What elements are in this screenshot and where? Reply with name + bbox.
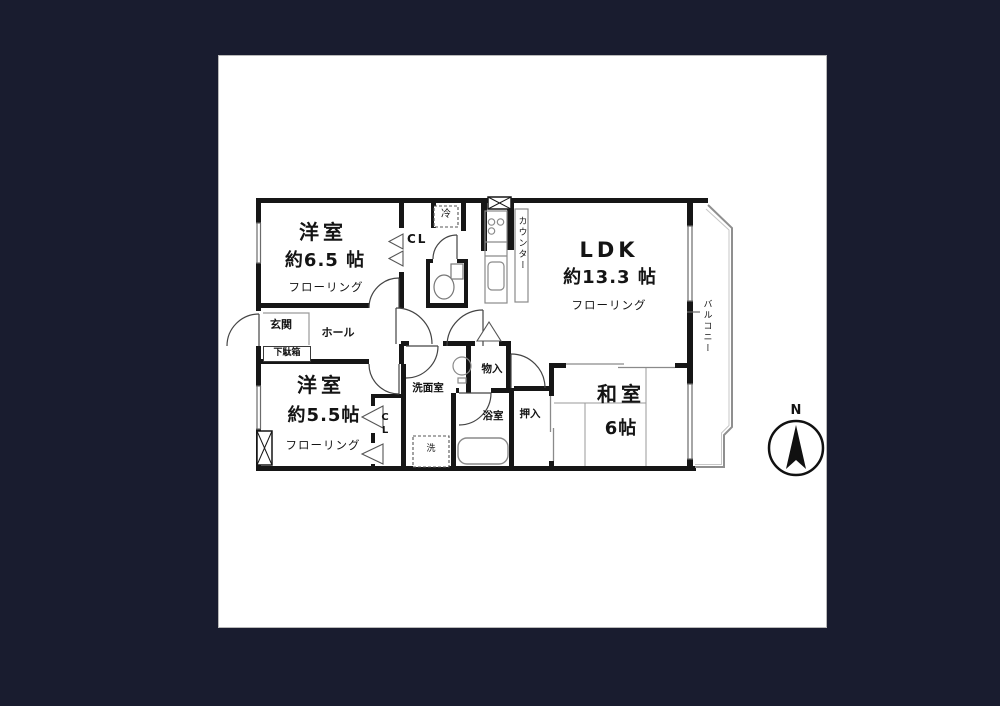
washroom-label: 洗面室 [403,383,453,394]
closet-bottom-label: CL [379,412,390,438]
toilet-fixture [434,264,463,299]
washer-label: 洗 [413,445,449,454]
counter-label: カウンター [516,216,525,271]
balcony-label: バルコニー [701,299,710,354]
storage-label: 物入 [472,364,512,375]
bedroom1-size: 約6.5 帖 [265,252,385,271]
bedroom2-name: 洋室 [281,375,361,396]
canvas-background: 洋室 約6.5 帖 フローリング CL 冷 カウンター LDK 約13.3 帖 … [0,0,1000,706]
bedroom1-floor: フローリング [276,281,376,293]
shoe-box-label: 下駄箱 [263,346,311,362]
floorplan-drawing [219,56,828,629]
bedroom1-name: 洋室 [283,222,363,243]
hall-label: ホール [308,327,368,339]
ldk-floor: フローリング [559,299,659,311]
sliding-doors [551,364,676,461]
closet-top-label: CL [407,233,427,246]
compass [769,421,823,475]
entrance-label: 玄関 [261,319,301,331]
washitsu-size: 6帖 [581,420,661,439]
bathroom-label: 浴室 [473,411,513,422]
ldk-size: 約13.3 帖 [550,269,670,288]
oshiire-label: 押入 [510,409,550,420]
bathtub-fixture [458,438,508,464]
ldk-name: LDK [569,239,649,261]
bedroom2-size: 約5.5帖 [264,407,384,426]
bedroom2-floor: フローリング [273,439,373,451]
refrigerator-label: 冷 [434,210,458,221]
compass-north-label: N [786,404,806,418]
washitsu-name: 和室 [581,384,661,405]
floorplan-sheet: 洋室 約6.5 帖 フローリング CL 冷 カウンター LDK 約13.3 帖 … [218,55,827,628]
